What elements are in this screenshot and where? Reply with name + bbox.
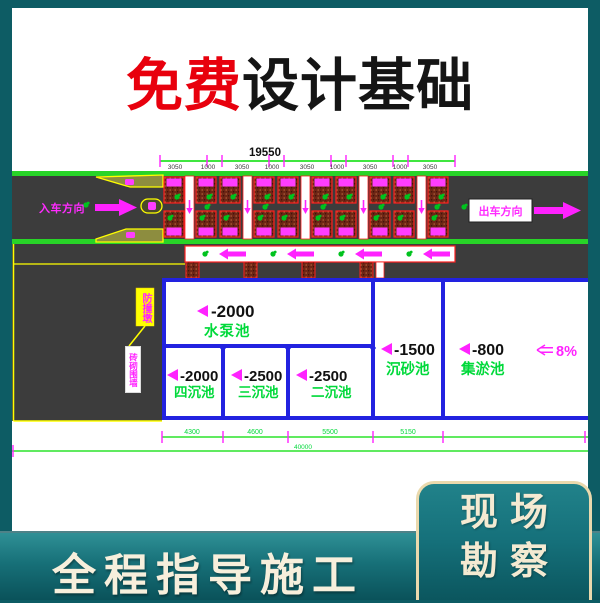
segment-dim: 1000 [265, 164, 280, 171]
pool-name: 水泵池 [204, 322, 251, 340]
dimension-header: 19550 3050 1000 3050 1000 3050 1000 3050… [160, 147, 455, 171]
segment-dim: 1000 [330, 164, 345, 171]
entry-direction-label: 入车方向 [39, 201, 85, 215]
pool-name: 二沉池 [311, 384, 352, 400]
pool-level: -1500 [394, 342, 435, 359]
segment-dim: 3050 [300, 164, 315, 171]
pool-name: 四沉池 [174, 384, 215, 400]
pool-name: 集淤池 [460, 360, 505, 378]
callout-box-label: 防撞墩 [137, 289, 154, 326]
bottom-dim: 5150 [400, 429, 416, 436]
exit-direction-label: 出车方向 [479, 204, 523, 218]
road-edge-line [12, 171, 588, 176]
pool-level: -2000 [211, 302, 254, 321]
callout-wall-label: 砖砌围墙 [125, 346, 141, 393]
pool-level: -800 [472, 342, 504, 359]
bottom-dim: 4600 [247, 429, 263, 436]
total-width-dimension: 19550 [249, 147, 281, 159]
footer-band-text: 全程指导施工 [0, 539, 416, 603]
bottom-dim: 4300 [184, 429, 200, 436]
pool-name: 沉砂池 [386, 360, 430, 378]
segment-dim: 3050 [235, 164, 250, 171]
corner-panel-line1: 现场 [419, 489, 589, 538]
segment-dim: 1000 [201, 164, 216, 171]
exit-direction: 出车方向 [461, 199, 581, 222]
site-total-dim: 40000 [294, 444, 312, 451]
segment-dimensions: 3050 1000 3050 1000 3050 1000 3050 1000 … [168, 164, 438, 171]
pool-level: -2500 [309, 368, 347, 385]
slope-label: 8% [556, 344, 577, 360]
pool-level: -2500 [244, 368, 282, 385]
promo-title-highlight: 免费 [126, 54, 242, 118]
corner-panel: 现场 勘察 [416, 481, 592, 600]
pool-level: -2000 [180, 368, 218, 385]
segment-dim: 1000 [393, 164, 408, 171]
pool-name: 三沉池 [238, 384, 279, 400]
pool-pump [164, 280, 373, 346]
segment-dim: 3050 [168, 164, 183, 171]
promo-title-rest: 设计基础 [242, 54, 474, 118]
site-plan-diagram: 19550 3050 1000 3050 1000 3050 1000 3050… [12, 128, 588, 460]
bottom-dimensions: 4300 4600 5500 5150 40000 [12, 429, 588, 457]
segment-dim: 3050 [363, 164, 378, 171]
segment-dim: 3050 [423, 164, 438, 171]
promo-title: 免费设计基础 [12, 48, 588, 124]
promo-image: 免费设计基础 [0, 0, 600, 600]
corner-panel-line2: 勘察 [419, 538, 589, 587]
pool-walls [164, 280, 588, 418]
bottom-dim: 5500 [322, 429, 338, 436]
